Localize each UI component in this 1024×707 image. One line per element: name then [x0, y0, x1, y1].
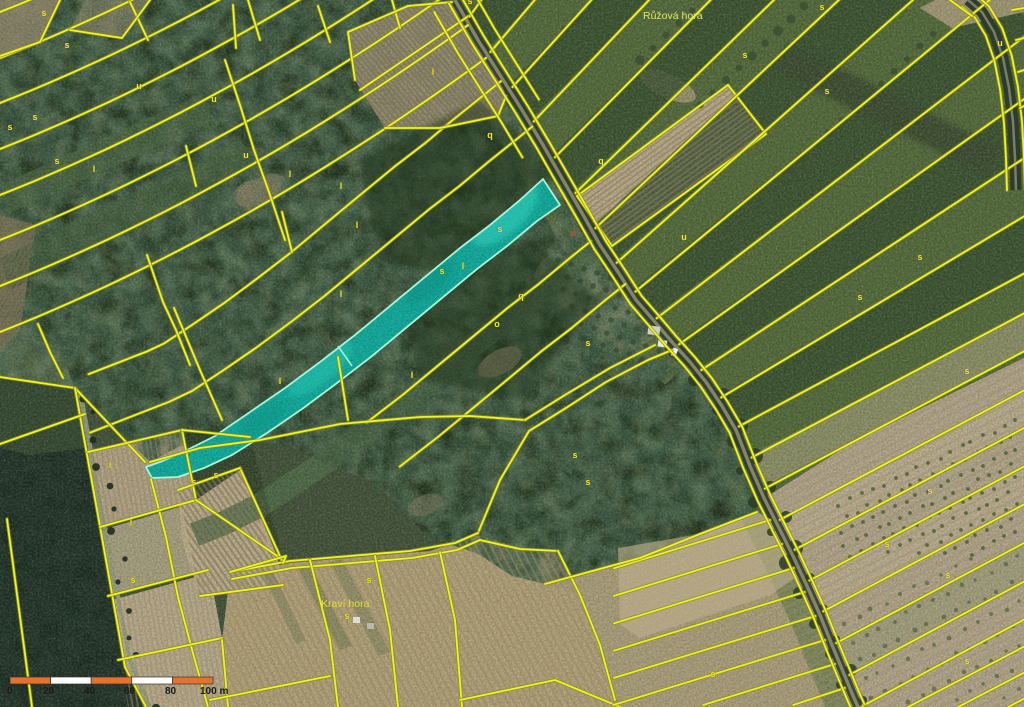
- svg-text:l: l: [279, 376, 282, 386]
- svg-text:s: s: [585, 477, 590, 487]
- svg-text:u: u: [997, 38, 1003, 48]
- svg-text:s: s: [964, 366, 969, 376]
- svg-text:l: l: [130, 518, 133, 528]
- svg-text:80: 80: [165, 686, 177, 697]
- svg-text:s: s: [917, 252, 922, 262]
- svg-text:s: s: [585, 338, 590, 348]
- svg-text:s: s: [742, 50, 747, 60]
- svg-text:o: o: [494, 319, 500, 329]
- svg-text:q: q: [518, 291, 524, 301]
- svg-text:s: s: [964, 656, 969, 666]
- svg-text:u: u: [681, 232, 687, 242]
- svg-text:s: s: [7, 122, 12, 132]
- svg-text:l: l: [432, 67, 435, 77]
- svg-text:q: q: [598, 156, 604, 166]
- svg-text:l: l: [109, 460, 112, 470]
- svg-text:s: s: [130, 575, 135, 585]
- svg-text:s: s: [344, 611, 349, 621]
- svg-text:s: s: [824, 86, 829, 96]
- svg-text:100 m: 100 m: [200, 686, 228, 697]
- svg-text:s: s: [64, 40, 69, 50]
- svg-text:20: 20: [43, 686, 55, 697]
- svg-text:q: q: [487, 130, 493, 140]
- svg-text:u: u: [211, 94, 217, 104]
- svg-text:s: s: [439, 266, 444, 276]
- svg-text:s: s: [41, 8, 46, 18]
- svg-text:s: s: [191, 477, 196, 487]
- svg-text:s: s: [927, 486, 932, 496]
- svg-text:s: s: [32, 112, 37, 122]
- svg-text:l: l: [356, 220, 359, 230]
- svg-text:s: s: [572, 450, 577, 460]
- svg-text:s: s: [213, 470, 218, 480]
- svg-text:0: 0: [7, 686, 13, 697]
- svg-text:l: l: [93, 164, 96, 174]
- svg-text:Kraví hora: Kraví hora: [321, 598, 370, 610]
- svg-text:u: u: [136, 81, 142, 91]
- svg-text:s: s: [884, 539, 889, 549]
- svg-text:60: 60: [124, 686, 136, 697]
- svg-text:s: s: [54, 156, 59, 166]
- svg-text:s: s: [857, 292, 862, 302]
- svg-text:s: s: [710, 669, 715, 679]
- svg-text:l: l: [289, 169, 292, 179]
- svg-text:u: u: [243, 150, 249, 160]
- svg-text:s: s: [366, 575, 371, 585]
- svg-text:l: l: [411, 370, 414, 380]
- svg-text:Růžová hora: Růžová hora: [643, 10, 703, 22]
- svg-text:s: s: [497, 224, 502, 234]
- svg-text:l: l: [340, 289, 343, 299]
- svg-text:s: s: [945, 570, 950, 580]
- svg-text:s: s: [819, 2, 824, 12]
- svg-text:l: l: [462, 261, 465, 271]
- svg-text:40: 40: [84, 686, 96, 697]
- svg-text:l: l: [340, 181, 343, 191]
- svg-text:s: s: [467, 0, 472, 6]
